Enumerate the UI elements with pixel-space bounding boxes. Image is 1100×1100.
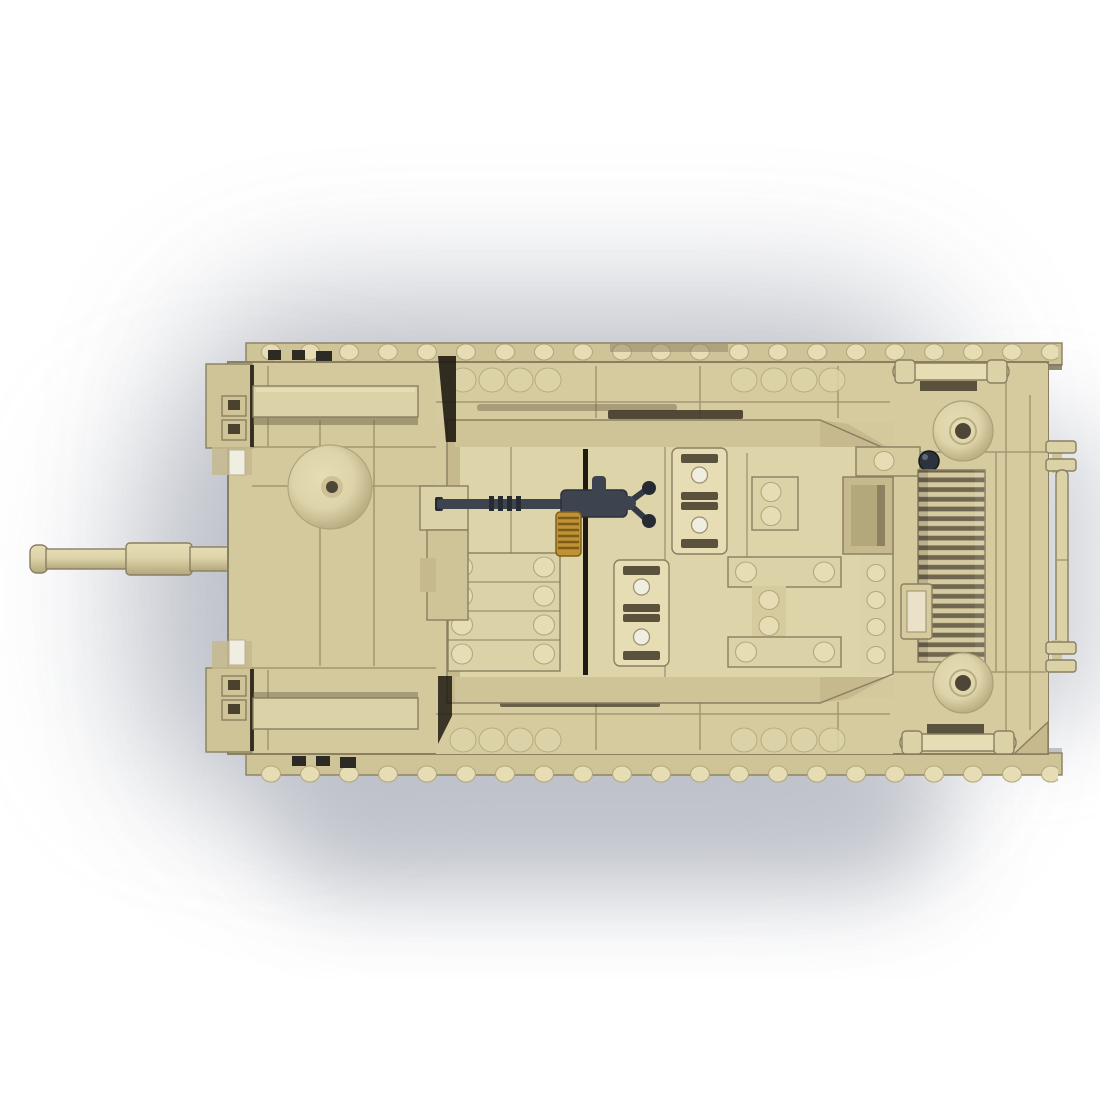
mg-mount-ball: [642, 514, 656, 528]
clear-light-tile: [229, 450, 245, 475]
front-beam-bottom: [253, 692, 418, 729]
tread-tile: [340, 757, 356, 768]
track-dark-segment: [610, 344, 728, 352]
spare-track-link-upper: [672, 448, 727, 554]
front-beam-top: [253, 386, 418, 425]
casemate-band-bottom: [455, 677, 820, 703]
tread-tile: [292, 350, 305, 360]
front-hatch-dome: [288, 445, 372, 529]
tread-tile: [292, 756, 306, 766]
deck-step-shadow: [608, 410, 743, 419]
tread-tile: [268, 350, 281, 360]
tread-tile: [316, 351, 332, 362]
tread-tile: [316, 756, 330, 766]
clear-light-tile: [229, 640, 245, 665]
frame-bracket: [901, 584, 932, 639]
barrel-sleeve: [126, 543, 192, 575]
vent-cap-top: [933, 401, 993, 461]
stowage-recess: [843, 477, 893, 554]
mushroom-knob: [919, 451, 939, 471]
mg-mount-ball: [642, 481, 656, 495]
roof-center-seam: [583, 449, 588, 675]
spare-track-link-lower: [614, 560, 669, 666]
mg-sight-post: [592, 476, 606, 494]
tank-product-render: Brick-built assault-gun tank model — top…: [0, 0, 1100, 1100]
barrel-thin-section: [46, 549, 128, 569]
mg-ammo-drum: [556, 512, 581, 556]
track-studs: [250, 764, 1058, 784]
casemate-band-top: [455, 420, 820, 447]
vent-cap-bottom: [933, 653, 993, 713]
product-image-stage: Brick-built assault-gun tank model — top…: [0, 0, 1100, 1100]
deck-crease: [477, 404, 677, 411]
